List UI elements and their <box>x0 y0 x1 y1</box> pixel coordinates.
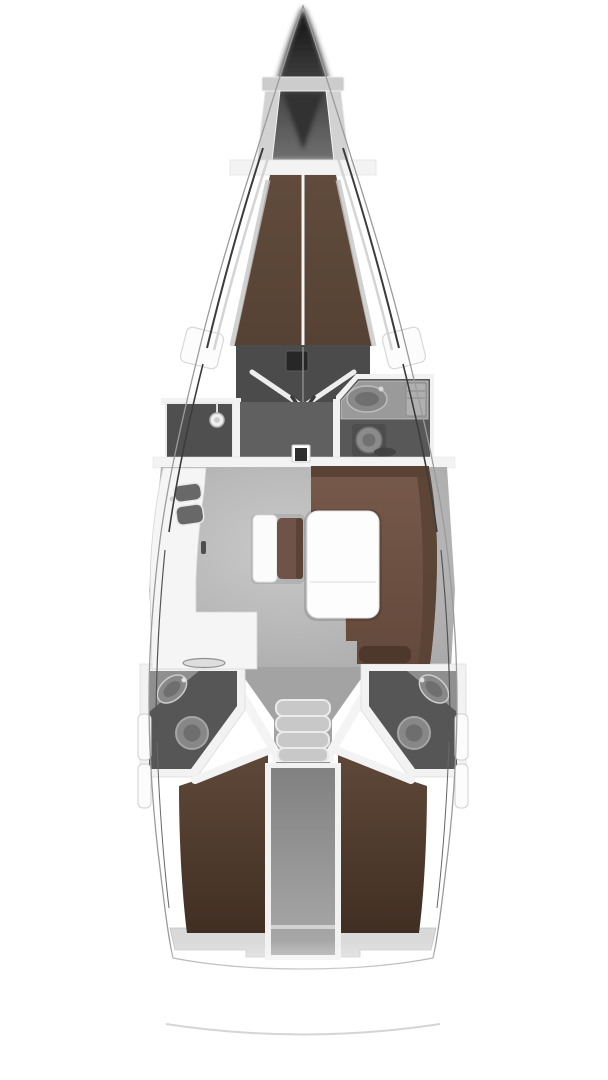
v-berth-center-line <box>302 172 305 348</box>
saloon-table <box>307 511 379 618</box>
stern-fade <box>110 940 500 1080</box>
engine-compartment <box>265 763 341 960</box>
center-bench <box>253 515 277 582</box>
settee-pillow <box>359 646 411 663</box>
step-4 <box>278 748 328 762</box>
hull-locker-starboard-2 <box>455 764 468 808</box>
toilet-forward-inner <box>363 434 376 447</box>
head-wall-left <box>233 399 240 462</box>
anchor-locker-band <box>262 77 344 91</box>
hull-locker-port-2 <box>138 764 151 808</box>
galley-sink-2 <box>175 503 204 526</box>
toilet-port-inner <box>184 725 201 742</box>
engine-box-line <box>271 925 335 929</box>
wash-basin-forward-inner <box>355 392 379 406</box>
step-3 <box>277 732 329 748</box>
faucet-forward-icon <box>379 387 384 392</box>
step-2 <box>276 716 330 732</box>
toilet-starboard-inner <box>406 725 423 742</box>
stove-icon <box>183 659 225 668</box>
faucet-starboard-icon <box>420 678 425 683</box>
galley-handle <box>201 541 206 554</box>
galley-sink-1 <box>173 482 202 503</box>
center-bench-cushion-edge <box>296 518 303 579</box>
deck-hatch <box>286 351 308 371</box>
shower-head-center <box>214 417 220 423</box>
step-1 <box>276 700 330 716</box>
yacht-floorplan-page <box>0 0 608 1080</box>
yacht-floorplan <box>0 0 608 1080</box>
mast-post-icon <box>295 448 307 461</box>
bulkhead-vent-icon <box>374 448 396 457</box>
settee-backrest-top <box>311 466 429 477</box>
faucet-port-icon <box>182 678 187 683</box>
head-corridor <box>240 402 333 462</box>
anchor-locker <box>257 77 349 161</box>
